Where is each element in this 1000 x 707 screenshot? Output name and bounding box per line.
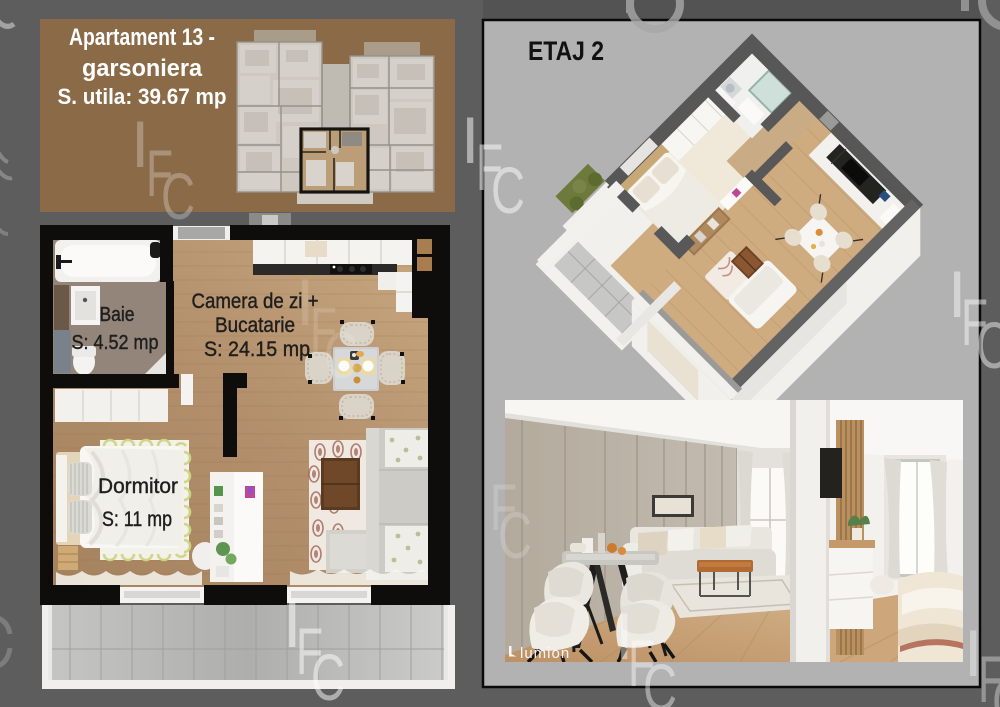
svg-text:S: 11 mp: S: 11 mp [102, 508, 172, 531]
svg-text:Apartament 13 -: Apartament 13 - [69, 24, 215, 51]
svg-text:S: 24.15 mp: S: 24.15 mp [204, 338, 310, 361]
svg-text:Bucatarie: Bucatarie [215, 314, 295, 337]
svg-text:S: 4.52 mp: S: 4.52 mp [72, 332, 159, 354]
svg-text:garsoniera: garsoniera [82, 55, 203, 82]
svg-text:Baie: Baie [100, 304, 135, 326]
svg-text:C: C [311, 640, 345, 707]
svg-text:C: C [976, 308, 1000, 382]
svg-text:C: C [992, 664, 1000, 707]
svg-text:C: C [161, 159, 195, 233]
svg-text:Dormitor: Dormitor [98, 475, 178, 498]
svg-text:C: C [324, 318, 358, 392]
svg-text:S. utila: 39.67 mp: S. utila: 39.67 mp [58, 84, 227, 109]
svg-text:ETAJ 2: ETAJ 2 [528, 36, 604, 66]
svg-text:C: C [643, 650, 677, 707]
svg-text:C: C [498, 498, 532, 572]
svg-text:lumion: lumion [520, 645, 570, 662]
svg-text:C: C [491, 153, 525, 227]
